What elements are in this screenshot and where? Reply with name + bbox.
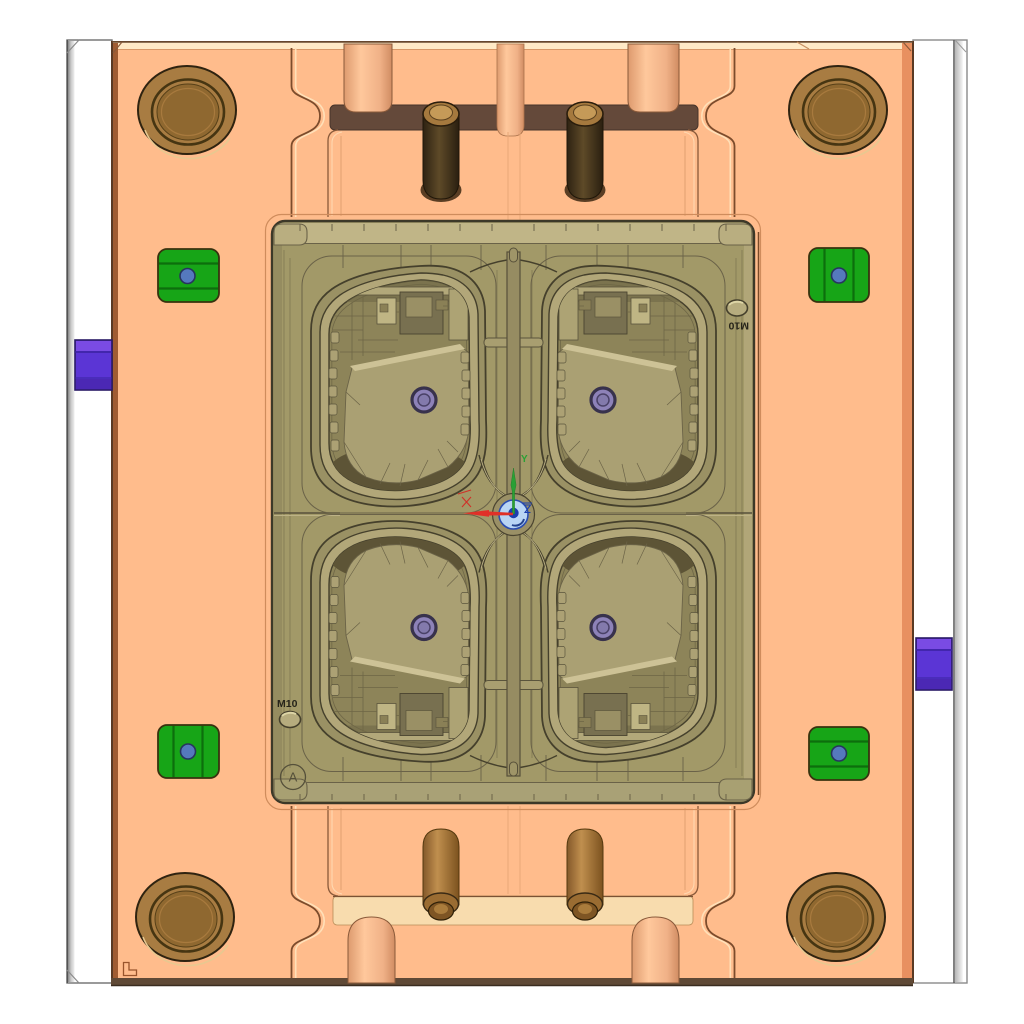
svg-text:A: A <box>289 770 298 785</box>
svg-text:M10: M10 <box>728 320 749 332</box>
svg-text:Y: Y <box>521 454 528 465</box>
svg-text:M10: M10 <box>277 698 298 710</box>
